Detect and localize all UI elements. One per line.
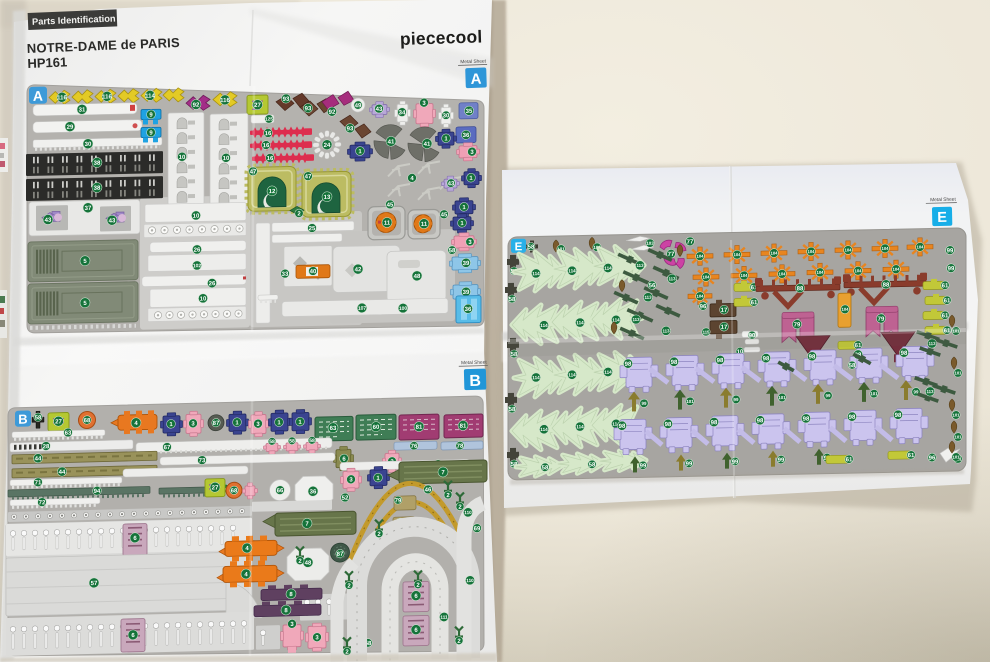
svg-text:36: 36 [310, 489, 317, 495]
svg-text:13: 13 [324, 195, 331, 201]
svg-text:110: 110 [464, 510, 472, 515]
svg-text:98: 98 [619, 424, 626, 430]
svg-text:99: 99 [640, 463, 647, 469]
svg-text:26: 26 [209, 281, 216, 287]
svg-text:79: 79 [395, 498, 402, 504]
svg-text:63: 63 [65, 431, 72, 437]
svg-text:104: 104 [697, 294, 705, 299]
svg-text:79: 79 [878, 317, 885, 323]
svg-text:98: 98 [717, 358, 724, 364]
svg-text:58: 58 [589, 462, 596, 468]
svg-text:28: 28 [43, 444, 50, 450]
svg-text:99: 99 [947, 248, 954, 254]
svg-text:93: 93 [347, 126, 354, 132]
svg-text:114: 114 [540, 427, 548, 432]
svg-text:36: 36 [463, 133, 470, 139]
svg-text:99: 99 [778, 458, 785, 464]
svg-text:43: 43 [109, 218, 116, 224]
svg-text:93: 93 [283, 97, 290, 103]
svg-text:A: A [33, 88, 43, 104]
svg-text:58: 58 [849, 363, 856, 369]
svg-text:114: 114 [604, 370, 612, 375]
svg-text:99: 99 [642, 401, 647, 406]
svg-text:115: 115 [703, 329, 710, 334]
svg-text:102: 102 [193, 263, 202, 269]
svg-text:30: 30 [85, 142, 92, 148]
svg-text:104: 104 [808, 249, 816, 254]
svg-text:92: 92 [329, 110, 336, 116]
svg-text:88: 88 [797, 286, 804, 292]
svg-text:67: 67 [164, 445, 171, 451]
svg-text:61: 61 [942, 283, 949, 289]
svg-text:78: 78 [457, 444, 464, 450]
svg-text:11: 11 [384, 221, 391, 227]
svg-text:98: 98 [711, 420, 718, 426]
svg-text:61: 61 [908, 453, 915, 459]
svg-text:114: 114 [540, 323, 548, 328]
svg-text:63: 63 [330, 426, 337, 432]
svg-text:92: 92 [193, 103, 200, 109]
svg-text:99: 99 [734, 397, 739, 402]
svg-text:114: 114 [576, 424, 584, 429]
svg-text:39: 39 [463, 290, 470, 296]
svg-text:48: 48 [414, 274, 421, 280]
svg-text:114: 114 [532, 271, 540, 276]
svg-text:114: 114 [532, 375, 540, 380]
svg-text:101: 101 [778, 395, 786, 400]
svg-text:98: 98 [895, 413, 902, 419]
svg-text:HP161: HP161 [27, 54, 67, 71]
svg-text:30: 30 [443, 113, 450, 119]
svg-text:81: 81 [460, 424, 467, 430]
svg-text:104: 104 [845, 247, 853, 252]
svg-text:27: 27 [212, 485, 219, 491]
svg-text:94: 94 [94, 489, 101, 495]
svg-text:58: 58 [509, 297, 516, 303]
svg-text:111: 111 [440, 615, 448, 620]
svg-text:104: 104 [917, 244, 925, 249]
svg-text:113: 113 [644, 295, 652, 300]
svg-text:116: 116 [102, 94, 112, 100]
svg-text:76: 76 [411, 444, 418, 450]
svg-text:41: 41 [388, 139, 395, 145]
svg-text:E: E [937, 210, 947, 226]
svg-text:104: 104 [893, 267, 901, 272]
svg-text:100: 100 [399, 306, 408, 312]
svg-text:104: 104 [855, 268, 863, 273]
svg-text:17: 17 [721, 308, 728, 314]
svg-text:17: 17 [721, 325, 728, 331]
svg-text:10: 10 [200, 296, 207, 302]
svg-text:87: 87 [213, 421, 220, 427]
svg-text:27: 27 [55, 419, 62, 425]
svg-text:45: 45 [441, 212, 448, 218]
svg-text:72: 72 [39, 500, 46, 506]
svg-text:26: 26 [194, 248, 201, 254]
svg-text:61: 61 [944, 298, 951, 304]
svg-text:34: 34 [399, 110, 406, 116]
svg-text:29: 29 [67, 125, 74, 131]
svg-text:98: 98 [671, 360, 678, 366]
svg-text:77: 77 [687, 239, 694, 245]
svg-text:114: 114 [568, 372, 576, 377]
svg-text:98: 98 [763, 356, 770, 362]
svg-text:68: 68 [231, 488, 238, 494]
svg-text:40: 40 [310, 269, 317, 275]
svg-text:B: B [18, 412, 27, 427]
svg-text:93: 93 [305, 106, 312, 112]
svg-text:107: 107 [358, 306, 367, 312]
svg-text:114: 114 [145, 94, 155, 100]
svg-text:114: 114 [568, 268, 576, 273]
svg-text:125: 125 [265, 116, 273, 121]
svg-text:101: 101 [953, 412, 961, 417]
svg-text:49: 49 [355, 103, 362, 109]
svg-text:58: 58 [509, 407, 516, 413]
svg-text:116: 116 [57, 95, 67, 101]
svg-text:101: 101 [686, 399, 694, 404]
svg-text:66: 66 [277, 488, 284, 494]
svg-text:98: 98 [809, 354, 816, 360]
svg-text:58: 58 [542, 465, 549, 471]
svg-text:99: 99 [948, 266, 955, 272]
svg-text:35: 35 [466, 109, 473, 115]
svg-text:57: 57 [91, 581, 98, 587]
svg-text:73: 73 [199, 458, 206, 464]
svg-text:96: 96 [700, 304, 707, 310]
svg-text:60: 60 [373, 425, 380, 431]
svg-text:69: 69 [474, 526, 481, 532]
svg-text:103: 103 [646, 241, 654, 246]
svg-text:45: 45 [387, 203, 394, 209]
svg-text:104: 104 [697, 254, 705, 259]
svg-text:101: 101 [955, 434, 963, 439]
svg-text:98: 98 [803, 417, 810, 423]
svg-text:58: 58 [269, 439, 275, 445]
svg-text:113: 113 [632, 317, 640, 322]
svg-text:99: 99 [732, 460, 739, 466]
svg-text:114: 114 [604, 266, 612, 271]
svg-text:39: 39 [463, 261, 470, 267]
svg-text:87: 87 [337, 552, 344, 558]
svg-text:113: 113 [636, 263, 644, 268]
svg-text:27: 27 [254, 103, 261, 109]
svg-text:38: 38 [94, 186, 101, 192]
svg-text:42: 42 [355, 267, 362, 273]
svg-text:44: 44 [59, 470, 66, 476]
svg-text:43: 43 [376, 107, 383, 113]
svg-text:A: A [470, 71, 482, 88]
svg-text:104: 104 [734, 252, 742, 257]
svg-text:104: 104 [741, 273, 749, 278]
svg-text:43: 43 [45, 218, 52, 224]
svg-text:33: 33 [282, 272, 289, 278]
svg-text:104: 104 [817, 270, 825, 275]
svg-text:58: 58 [449, 248, 456, 254]
svg-text:41: 41 [424, 142, 431, 148]
svg-text:79: 79 [794, 322, 801, 328]
svg-text:98: 98 [849, 415, 856, 421]
svg-text:37: 37 [85, 206, 92, 212]
svg-text:46: 46 [425, 487, 432, 493]
svg-text:16: 16 [265, 131, 272, 137]
svg-text:10: 10 [179, 155, 186, 161]
svg-text:114: 114 [576, 320, 584, 325]
svg-text:11: 11 [421, 222, 428, 228]
svg-text:Metal Sheet: Metal Sheet [461, 360, 487, 367]
svg-text:16: 16 [267, 156, 274, 162]
svg-text:52: 52 [342, 496, 349, 502]
svg-text:43: 43 [448, 181, 455, 187]
svg-text:E: E [515, 241, 523, 253]
svg-text:38: 38 [94, 161, 101, 167]
svg-text:98: 98 [665, 422, 672, 428]
svg-text:48: 48 [305, 561, 312, 567]
svg-text:88: 88 [883, 283, 890, 289]
svg-text:98: 98 [901, 351, 908, 357]
svg-text:10: 10 [223, 156, 230, 162]
svg-text:61: 61 [751, 300, 758, 306]
svg-text:113: 113 [668, 276, 676, 281]
svg-text:113: 113 [926, 389, 934, 394]
svg-text:116: 116 [220, 98, 230, 104]
svg-text:101: 101 [955, 370, 963, 375]
svg-text:98: 98 [757, 418, 764, 424]
svg-text:104: 104 [842, 307, 850, 312]
svg-text:B: B [469, 373, 481, 390]
svg-text:58: 58 [289, 439, 295, 445]
svg-text:24: 24 [324, 143, 331, 149]
svg-text:44: 44 [35, 456, 42, 462]
svg-text:81: 81 [416, 425, 423, 431]
svg-text:58: 58 [35, 415, 42, 421]
svg-text:61: 61 [942, 313, 949, 319]
svg-text:110: 110 [466, 578, 474, 583]
svg-text:99: 99 [686, 461, 693, 467]
svg-text:101: 101 [953, 454, 961, 459]
svg-text:104: 104 [771, 250, 779, 255]
svg-text:25: 25 [309, 226, 316, 232]
svg-text:61: 61 [846, 457, 853, 463]
svg-text:96: 96 [929, 456, 936, 462]
svg-text:99: 99 [826, 393, 831, 398]
svg-text:10: 10 [193, 214, 200, 220]
svg-text:12: 12 [269, 189, 276, 195]
svg-text:Metal Sheet: Metal Sheet [930, 197, 956, 204]
svg-text:56: 56 [649, 283, 656, 289]
svg-text:47: 47 [305, 174, 312, 180]
svg-text:16: 16 [263, 143, 270, 149]
svg-text:101: 101 [870, 391, 878, 396]
svg-text:98: 98 [625, 362, 632, 368]
svg-text:58: 58 [309, 438, 315, 444]
svg-text:31: 31 [79, 107, 86, 113]
svg-text:113: 113 [662, 328, 670, 333]
svg-text:36: 36 [465, 307, 472, 313]
svg-text:114: 114 [612, 317, 620, 322]
svg-text:68: 68 [84, 418, 91, 424]
svg-text:104: 104 [882, 246, 890, 251]
svg-text:piececool: piececool [400, 26, 483, 49]
svg-text:71: 71 [35, 480, 42, 486]
svg-text:104: 104 [703, 274, 711, 279]
svg-text:104: 104 [779, 271, 787, 276]
